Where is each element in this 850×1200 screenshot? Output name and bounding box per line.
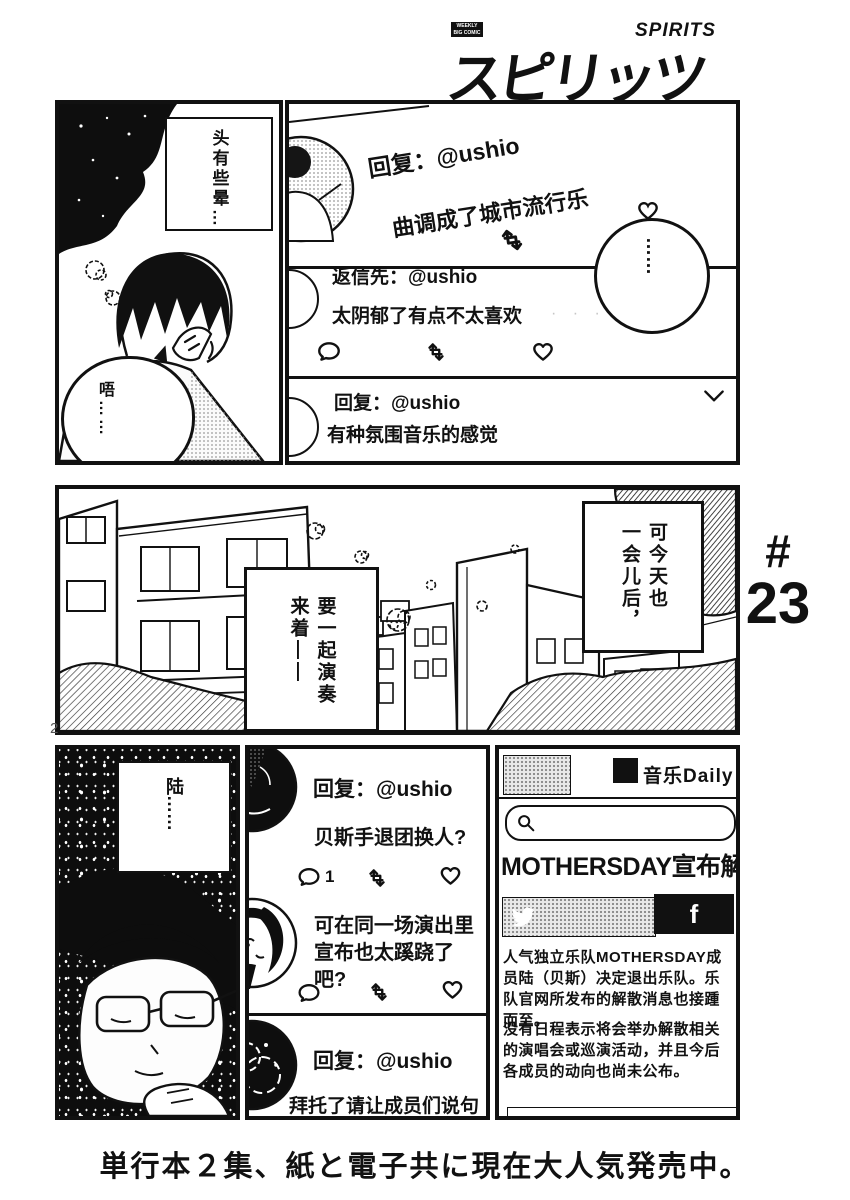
narration-text-left: 要一起演奏 来着—— [285,570,339,729]
manga-page: WEEKLY BIG COMIC スピリッツ SPIRITS [0,0,850,1200]
reply-bubble-icon [315,339,343,365]
tweet-2-reply-label: 返信先：@ushio [332,266,477,289]
panel-news-app: 音乐Daily MOTHERSDAY宣布解散 f 人气独立乐队MOTHERSDA… [495,745,740,1120]
twitter-share-button [502,897,656,937]
app-logo-placeholder [503,755,571,795]
search-icon [515,812,537,834]
balloon-heart-icon [634,198,662,224]
chapter-hash: # [738,528,818,574]
tweet-2-text: 太阴郁了有点不太喜欢 [332,301,522,328]
app-logo-square [613,758,638,783]
tweet-3-reply-label: 回复：@ushio [334,388,460,415]
narration-box-right: 可今天也 一会儿后， [582,501,704,653]
narration-box-riku: 陆…… [117,761,231,873]
panel-sns-bottom: 回复：@ushio 贝斯手退团换人? 1 可在同一场演出里 宣布也太蹊跷了吧? [245,745,490,1120]
panel-street: 要一起演奏 来着—— 可今天也 一会儿后， [55,485,740,735]
btweet-1-reply-count: 1 [325,867,334,887]
facebook-share-button: f [654,894,734,934]
narration-box-dizzy: 头有些晕… [165,117,273,231]
narration-text-riku: 陆…… [161,763,187,871]
twitter-bird-icon [509,903,537,931]
reply-bubble-icon [296,865,322,890]
facebook-f-icon: f [690,899,699,930]
chapter-digits: 23 [738,574,818,635]
heart-icon [439,977,466,1003]
spirits-latin-title: SPIRITS [635,20,716,42]
tweet-1-avatar [289,137,353,241]
news-headline: MOTHERSDAY宣布解散 [501,847,740,883]
thought-balloon: …… [594,218,710,334]
tweet-3: 回复：@ushio 有种氛围音乐的感觉 [289,376,736,461]
btweet-3-text: 拜托了请让成员们说句话 [289,1091,486,1120]
btweet-1-avatar [245,745,298,833]
chevron-down-icon [701,387,727,407]
btweet-1-reply-label: 回复：@ushio [313,773,452,803]
speech-bubble: 唔…… [61,356,195,465]
narration-text-right: 可今天也 一会儿后， [616,504,670,650]
retweet-icon [364,979,394,1005]
speech-bubble-text: 唔…… [92,381,116,438]
narration-text: 头有些晕… [207,119,232,229]
panel-scene-top-left: 头有些晕… 唔…… [55,100,283,465]
news-body-paragraph-2: 没有日程表示将会举办解散相关的演唱会或巡演活动，并且今后各成员的动向也尚未公布。 [503,1019,734,1082]
reply-bubble-icon [296,981,322,1006]
narration-box-left: 要一起演奏 来着—— [244,567,379,732]
heart-icon [437,863,464,889]
app-header-divider [499,797,736,799]
tweet-2-avatar [289,269,319,329]
magazine-logo: WEEKLY BIG COMIC スピリッツ SPIRITS [430,8,750,98]
search-bar [505,805,736,841]
retweet-icon [421,339,451,365]
heart-icon [529,339,557,365]
next-card-edge [507,1107,738,1120]
tweet-3-avatar [289,397,319,457]
page-number: 2 [50,720,58,737]
btweet-2-avatar [245,897,298,989]
retweet-icon [492,222,532,259]
app-name: 音乐Daily [643,761,733,788]
bottom-ad-caption: 単行本２集、紙と電子共に現在大人気発売中。 [0,1143,850,1185]
tweet-2-faint-marks: · · · [551,305,606,323]
btweet-3-reply-label: 回复：@ushio [313,1045,452,1075]
retweet-icon [362,865,392,891]
thought-balloon-dots: …… [641,221,663,331]
panel-scene-bottom-left: 陆…… [55,745,240,1120]
btweet-1-text: 贝斯手退团换人? [314,821,466,850]
tweet-divider [249,1013,486,1016]
panel-sns-top: 回复：@ushio 曲调成了城市流行乐 返信先：@ushio 太阴郁了有点不太喜… [285,100,740,465]
chapter-number: # 23 [738,528,818,635]
tweet-3-text: 有种氛围音乐的感觉 [327,420,498,447]
